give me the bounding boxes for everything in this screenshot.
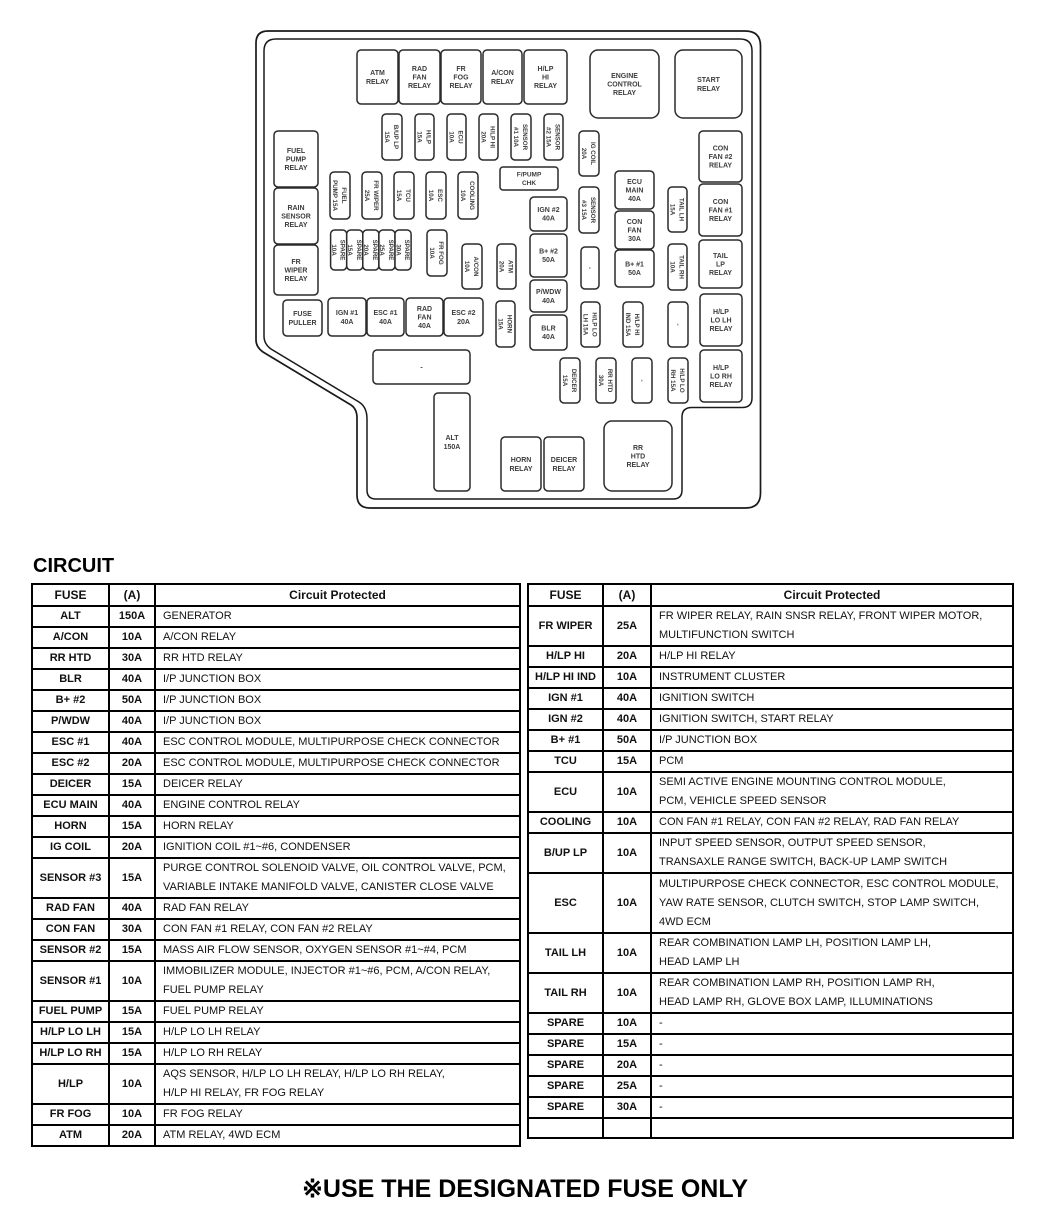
- svg-text:CONTROL: CONTROL: [607, 82, 642, 89]
- svg-text:CON: CON: [627, 219, 643, 226]
- svg-text:ATM20A: ATM20A: [498, 260, 514, 273]
- svg-text:20A: 20A: [457, 319, 470, 326]
- svg-text:SENSOR: SENSOR: [281, 213, 311, 220]
- svg-text:H/LP: H/LP: [538, 66, 554, 73]
- svg-text:SENSOR#3 15A: SENSOR#3 15A: [580, 197, 596, 224]
- svg-text:CON: CON: [713, 199, 729, 206]
- svg-text:RELAY: RELAY: [697, 86, 720, 93]
- svg-text:FAN: FAN: [418, 314, 432, 321]
- svg-text:RAD: RAD: [412, 66, 427, 73]
- svg-text:RAIN: RAIN: [287, 205, 304, 212]
- svg-text:RELAY: RELAY: [626, 462, 649, 469]
- svg-text:RELAY: RELAY: [613, 90, 636, 97]
- svg-text:RELAY: RELAY: [709, 270, 732, 277]
- svg-text:ECU: ECU: [627, 179, 642, 186]
- svg-text:FAN #2: FAN #2: [709, 154, 733, 161]
- svg-text:RAD: RAD: [417, 306, 432, 313]
- svg-text:PUMP: PUMP: [286, 156, 307, 163]
- svg-text:TAIL: TAIL: [713, 253, 729, 260]
- svg-text:FOG: FOG: [453, 75, 469, 82]
- svg-text:H/LP: H/LP: [713, 309, 729, 316]
- svg-text:MAIN: MAIN: [626, 187, 644, 194]
- svg-text:IGN #1: IGN #1: [336, 310, 358, 317]
- svg-text:FR: FR: [291, 259, 300, 266]
- svg-text:H/LP LOLH 15A: H/LP LOLH 15A: [582, 312, 598, 336]
- svg-text:RELAY: RELAY: [284, 222, 307, 229]
- svg-text:RELAY: RELAY: [709, 326, 732, 333]
- svg-text:LO LH: LO LH: [711, 317, 732, 324]
- svg-text:RR: RR: [633, 445, 643, 452]
- svg-text:RELAY: RELAY: [552, 466, 575, 473]
- svg-text:ESC10A: ESC10A: [427, 189, 443, 202]
- svg-text:ATM: ATM: [370, 70, 385, 77]
- svg-text:FR: FR: [456, 66, 465, 73]
- svg-text:40A: 40A: [542, 334, 555, 341]
- svg-text:ESC #1: ESC #1: [373, 310, 397, 317]
- svg-text:SENSOR#1 10A: SENSOR#1 10A: [512, 124, 528, 151]
- svg-text:H/LP15A: H/LP15A: [416, 130, 432, 144]
- svg-text:RELAY: RELAY: [709, 216, 732, 223]
- svg-text:RELAY: RELAY: [284, 276, 307, 283]
- svg-text:BLR: BLR: [541, 326, 555, 333]
- svg-text:LO RH: LO RH: [710, 373, 732, 380]
- svg-text:FAN #1: FAN #1: [709, 207, 733, 214]
- svg-text:SENSOR#2 15A: SENSOR#2 15A: [545, 124, 561, 151]
- svg-text:RELAY: RELAY: [709, 163, 732, 170]
- svg-text:RELAY: RELAY: [449, 83, 472, 90]
- svg-text:50A: 50A: [542, 257, 555, 264]
- svg-text:50A: 50A: [628, 270, 641, 277]
- svg-text:150A: 150A: [444, 444, 461, 451]
- svg-text:RELAY: RELAY: [509, 466, 532, 473]
- svg-text:40A: 40A: [418, 323, 431, 330]
- svg-text:FAN: FAN: [413, 75, 427, 82]
- svg-text:H/LP: H/LP: [713, 365, 729, 372]
- svg-text:DEICER: DEICER: [551, 457, 577, 464]
- svg-text:LP: LP: [716, 262, 725, 269]
- svg-text:PULLER: PULLER: [289, 320, 317, 327]
- svg-text:CON: CON: [713, 145, 729, 152]
- svg-text:30A: 30A: [628, 236, 641, 243]
- svg-text:FUSE: FUSE: [293, 311, 312, 318]
- svg-text:RELAY: RELAY: [491, 79, 514, 86]
- svg-text:A/CON: A/CON: [491, 70, 514, 77]
- svg-text:-: -: [674, 323, 681, 325]
- svg-text:F/PUMP: F/PUMP: [517, 172, 542, 179]
- svg-text:FUEL: FUEL: [287, 148, 306, 155]
- svg-text:B+ #1: B+ #1: [625, 262, 644, 269]
- svg-text:START: START: [697, 77, 721, 84]
- svg-text:-: -: [638, 379, 645, 381]
- svg-text:P/WDW: P/WDW: [536, 289, 561, 296]
- svg-text:RELAY: RELAY: [534, 83, 557, 90]
- svg-text:RELAY: RELAY: [284, 165, 307, 172]
- svg-text:WIPER: WIPER: [285, 267, 308, 274]
- svg-text:H/LP LORH 15A: H/LP LORH 15A: [669, 368, 685, 392]
- svg-text:ENGINE: ENGINE: [611, 73, 638, 80]
- svg-text:RELAY: RELAY: [408, 83, 431, 90]
- svg-text:HTD: HTD: [631, 453, 645, 460]
- svg-text:ESC #2: ESC #2: [451, 310, 475, 317]
- svg-text:B+ #2: B+ #2: [539, 249, 558, 256]
- svg-text:-: -: [586, 267, 593, 269]
- svg-text:40A: 40A: [341, 319, 354, 326]
- svg-text:40A: 40A: [379, 319, 392, 326]
- svg-text:ECU10A: ECU10A: [448, 130, 464, 144]
- svg-text:FAN: FAN: [628, 227, 642, 234]
- svg-text:HI: HI: [542, 75, 549, 82]
- svg-text:RELAY: RELAY: [366, 79, 389, 86]
- svg-text:40A: 40A: [542, 216, 555, 223]
- svg-text:CHK: CHK: [522, 180, 536, 187]
- svg-text:HORN: HORN: [511, 457, 532, 464]
- svg-text:40A: 40A: [542, 298, 555, 305]
- svg-text:ALT: ALT: [445, 435, 459, 442]
- svg-text:H/LP HIIND 15A: H/LP HIIND 15A: [624, 313, 640, 337]
- svg-text:40A: 40A: [628, 196, 641, 203]
- svg-text:IGN #2: IGN #2: [537, 207, 559, 214]
- svg-text:TCU15A: TCU15A: [395, 189, 411, 202]
- svg-text:RELAY: RELAY: [709, 382, 732, 389]
